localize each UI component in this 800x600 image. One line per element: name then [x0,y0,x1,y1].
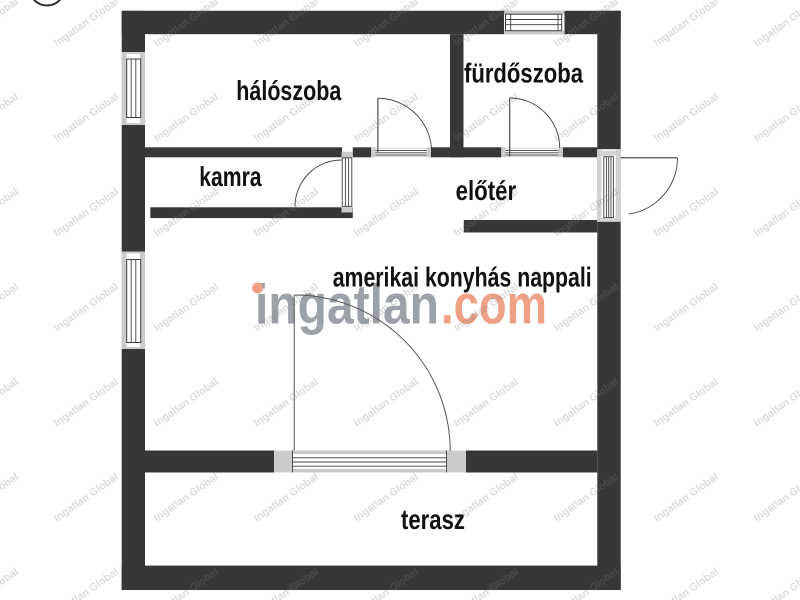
svg-text:kamra: kamra [199,161,262,192]
svg-text:előtér: előtér [456,175,517,206]
svg-text:fürdőszoba: fürdőszoba [464,58,583,89]
svg-text:terasz: terasz [401,504,465,535]
svg-text:hálószoba: hálószoba [236,75,341,106]
svg-text:amerikai konyhás nappali: amerikai konyhás nappali [333,262,592,293]
